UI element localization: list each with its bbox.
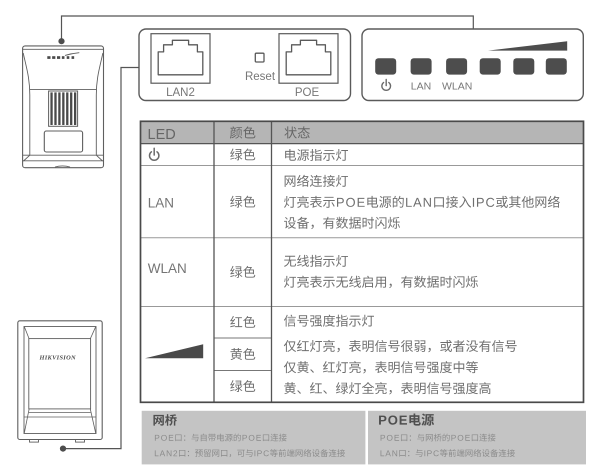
svg-text:LAN: LAN: [148, 196, 174, 211]
svg-text:LAN: LAN: [411, 80, 431, 92]
svg-text:POE: POE: [295, 87, 320, 99]
svg-text:Reset: Reset: [245, 71, 276, 83]
svg-text:HIKVISION: HIKVISION: [38, 354, 76, 361]
svg-text:LED: LED: [148, 127, 176, 143]
svg-text:WLAN: WLAN: [442, 80, 472, 92]
svg-text:LAN2: LAN2: [166, 87, 195, 99]
svg-text:WLAN: WLAN: [148, 261, 187, 276]
